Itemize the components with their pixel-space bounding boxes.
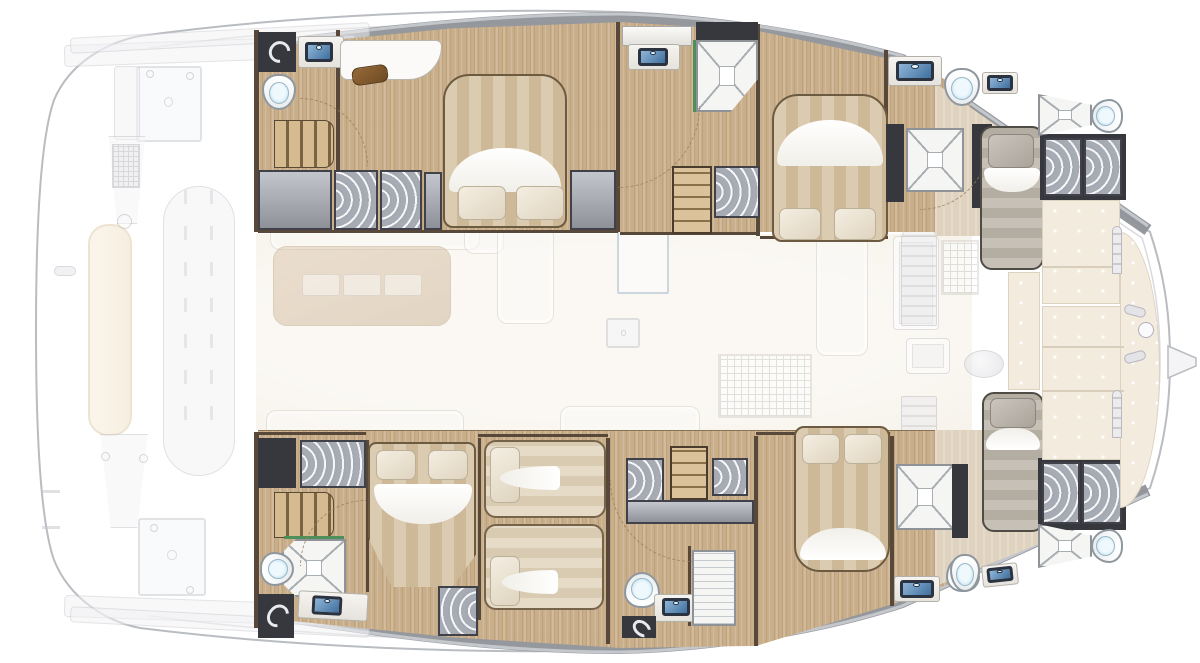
bow-sink-bottom bbox=[986, 566, 1013, 584]
port-galley-cab bbox=[622, 26, 692, 46]
pedestal-screw-2 bbox=[139, 454, 148, 463]
port-wardrobe-3 bbox=[714, 166, 760, 218]
port-fwd-berth-pillow-1 bbox=[458, 186, 506, 220]
port-mid-sink bbox=[638, 48, 668, 66]
cockpit-side-table bbox=[906, 338, 950, 374]
bow-wardrobe-bottom-2 bbox=[1082, 462, 1122, 524]
deck-hatch-forward-bottom bbox=[138, 518, 206, 596]
salon-sofa-right bbox=[497, 226, 554, 324]
hatch-screw-1 bbox=[146, 70, 154, 78]
bow-toilet-bottom bbox=[1091, 529, 1123, 563]
mast-post bbox=[114, 66, 140, 140]
winch-pedestal bbox=[964, 350, 1004, 378]
placemat-3 bbox=[384, 274, 422, 296]
port-locker-2 bbox=[424, 172, 442, 230]
bow-tip bbox=[1168, 346, 1196, 378]
bow-berth-top-pillow bbox=[988, 134, 1034, 168]
transom-cleat bbox=[54, 266, 76, 276]
bow-toilet-top bbox=[1091, 99, 1123, 133]
wall-stbd-salon-1 bbox=[258, 432, 366, 435]
pedestal-screw-1 bbox=[101, 452, 110, 461]
stbd-aft-sink bbox=[900, 580, 934, 598]
placemat-1 bbox=[302, 274, 340, 296]
port-drawers bbox=[570, 170, 616, 230]
hatch-screw-3 bbox=[150, 524, 158, 532]
wall-stbd-2 bbox=[478, 438, 481, 620]
port-aft-berth-pillow-2 bbox=[834, 208, 876, 240]
pedestal-vent-grid bbox=[112, 144, 140, 188]
cockpit-grid-panel bbox=[941, 240, 979, 295]
port-fwd-shower-cabinet bbox=[258, 32, 296, 72]
hatch-screw-2 bbox=[186, 72, 194, 80]
bow-walkway-pad bbox=[1008, 272, 1040, 390]
port-aft-berth-pillow-1 bbox=[779, 208, 821, 240]
deck-board bbox=[163, 186, 235, 476]
port-shower-green-trim bbox=[693, 40, 696, 112]
bow-roller bbox=[1138, 322, 1154, 338]
hatch-screw-4 bbox=[186, 586, 194, 594]
cockpit-couch bbox=[816, 234, 868, 356]
bow-ladder-bottom bbox=[1112, 390, 1122, 438]
stbd-fwd-berth-pillow-2 bbox=[428, 450, 468, 480]
cockpit-bench-cushion bbox=[88, 224, 132, 436]
bow-sunpad-top bbox=[1042, 200, 1120, 304]
bow-sink-top bbox=[987, 75, 1013, 91]
port-wardrobe-1 bbox=[334, 170, 378, 230]
hull-tick-2 bbox=[42, 526, 60, 529]
port-mid-dark-cab bbox=[696, 22, 758, 40]
pad-seam-2 bbox=[1042, 346, 1124, 348]
stbd-fwd-sink bbox=[312, 595, 343, 616]
port-shelves bbox=[672, 166, 712, 234]
stbd-mid-sink bbox=[662, 598, 690, 616]
port-fwd-berth-pillow-2 bbox=[516, 186, 564, 220]
pad-seam-1 bbox=[1042, 266, 1120, 268]
companionway-stairs-top bbox=[901, 226, 937, 326]
deck-hatch-mid bbox=[606, 318, 640, 348]
bow-wardrobe-bottom-1 bbox=[1042, 462, 1080, 524]
port-fwd-sink bbox=[305, 42, 333, 62]
port-aft-sink bbox=[896, 61, 934, 81]
stbd-aft-berth-pillow-1 bbox=[802, 434, 840, 464]
galley-fridge bbox=[617, 228, 669, 294]
galley-cooktop-grid bbox=[718, 354, 812, 418]
port-locker-1 bbox=[258, 170, 332, 230]
wall-stbd-5 bbox=[754, 436, 758, 646]
stbd-aft-shower-wall bbox=[952, 464, 968, 538]
bow-berth-bottom-sheet bbox=[986, 428, 1040, 450]
hull-tick-1 bbox=[42, 490, 60, 493]
port-wardrobe-2 bbox=[380, 170, 422, 230]
stbd-wardrobe-4 bbox=[712, 458, 748, 496]
port-fwd-steps bbox=[274, 120, 334, 168]
bow-ladder-top bbox=[1112, 226, 1122, 274]
stbd-wardrobe-2 bbox=[438, 586, 478, 636]
stbd-mid-shower bbox=[692, 550, 736, 626]
port-aft-shower-wall bbox=[886, 124, 904, 202]
yacht-floor-plan bbox=[0, 0, 1200, 663]
placemat-2 bbox=[343, 274, 381, 296]
stbd-fwd-cabinet bbox=[258, 438, 296, 488]
bow-berth-bottom-pillow bbox=[990, 398, 1036, 428]
stbd-fwd-berth-pillow-1 bbox=[376, 450, 416, 480]
bow-wardrobe-top-2 bbox=[1084, 138, 1122, 196]
stbd-mid-fixture bbox=[622, 616, 656, 638]
stbd-fwd-shower-cabinet bbox=[258, 594, 294, 638]
stbd-aft-berth-pillow-2 bbox=[844, 434, 882, 464]
wall-port-salon-1 bbox=[258, 230, 618, 233]
bow-wardrobe-top-1 bbox=[1044, 138, 1082, 196]
stbd-wardrobe-1 bbox=[300, 440, 366, 488]
wall-stbd-3 bbox=[606, 438, 610, 644]
stbd-aft-shower bbox=[896, 464, 954, 530]
wall-stbd-salon-2 bbox=[478, 434, 608, 437]
